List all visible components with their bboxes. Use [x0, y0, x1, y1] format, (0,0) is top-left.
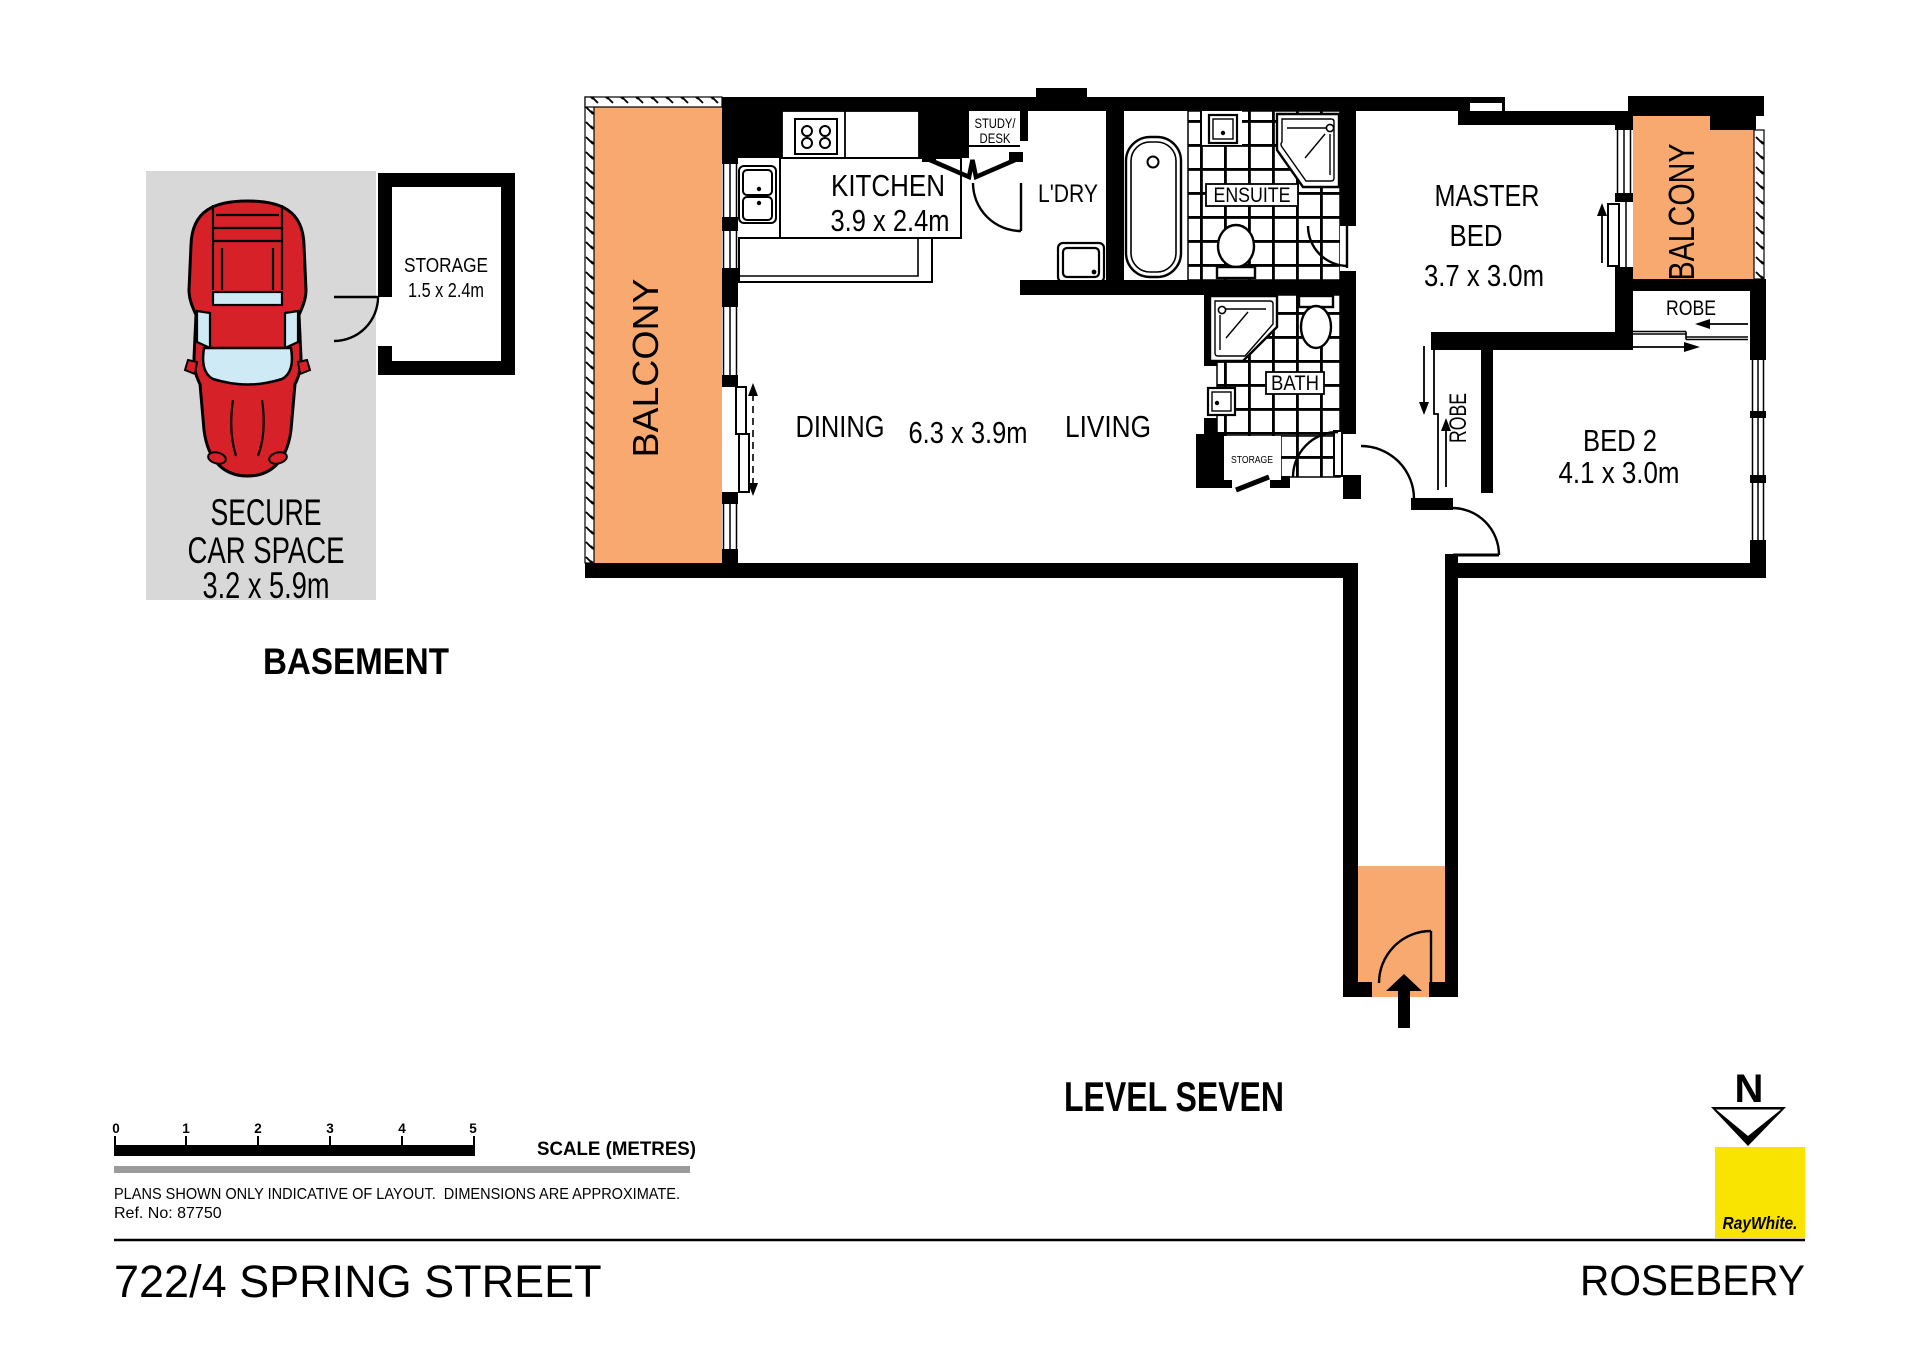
- svg-text:STORAGE: STORAGE: [404, 255, 488, 277]
- svg-text:BASEMENT: BASEMENT: [263, 641, 449, 682]
- svg-text:BED 2: BED 2: [1583, 423, 1657, 458]
- svg-text:0: 0: [112, 1121, 120, 1136]
- svg-text:ENSUITE: ENSUITE: [1214, 184, 1291, 207]
- svg-text:MASTER: MASTER: [1435, 178, 1540, 213]
- svg-text:ROBE: ROBE: [1445, 393, 1472, 443]
- svg-text:4: 4: [398, 1121, 406, 1136]
- svg-text:BATH: BATH: [1271, 372, 1319, 395]
- svg-text:722/4 SPRING STREET: 722/4 SPRING STREET: [114, 1256, 602, 1307]
- svg-text:BED: BED: [1450, 218, 1503, 253]
- svg-text:4.1 x 3.0m: 4.1 x 3.0m: [1559, 455, 1680, 490]
- svg-text:STORAGE: STORAGE: [1231, 454, 1273, 466]
- svg-text:1: 1: [182, 1121, 190, 1136]
- svg-text:1.5 x 2.4m: 1.5 x 2.4m: [408, 280, 484, 302]
- svg-text:5: 5: [469, 1121, 477, 1136]
- svg-text:ROSEBERY: ROSEBERY: [1580, 1257, 1805, 1305]
- svg-text:ROBE: ROBE: [1666, 297, 1716, 320]
- svg-text:Ref. No: 87750: Ref. No: 87750: [114, 1205, 222, 1222]
- svg-text:DESK: DESK: [980, 131, 1011, 146]
- svg-text:N: N: [1735, 1067, 1764, 1111]
- svg-text:RayWhite.: RayWhite.: [1723, 1213, 1798, 1233]
- svg-text:STUDY/: STUDY/: [975, 116, 1016, 131]
- svg-text:SECURE: SECURE: [211, 492, 322, 533]
- svg-text:3.2 x 5.9m: 3.2 x 5.9m: [203, 565, 330, 606]
- svg-text:3: 3: [326, 1121, 334, 1136]
- svg-text:3.7 x 3.0m: 3.7 x 3.0m: [1424, 258, 1544, 293]
- svg-text:BALCONY: BALCONY: [1661, 144, 1702, 281]
- svg-text:DINING: DINING: [796, 409, 885, 444]
- svg-text:2: 2: [254, 1121, 262, 1136]
- svg-text:LEVEL SEVEN: LEVEL SEVEN: [1064, 1073, 1284, 1120]
- svg-text:PLANS SHOWN ONLY INDICATIVE OF: PLANS SHOWN ONLY INDICATIVE OF LAYOUT. D…: [114, 1186, 680, 1203]
- svg-text:SCALE (METRES): SCALE (METRES): [537, 1139, 696, 1160]
- svg-text:LIVING: LIVING: [1065, 409, 1151, 444]
- svg-text:L'DRY: L'DRY: [1038, 180, 1098, 208]
- svg-text:BALCONY: BALCONY: [625, 279, 666, 458]
- svg-text:3.9 x 2.4m: 3.9 x 2.4m: [831, 203, 950, 238]
- svg-text:KITCHEN: KITCHEN: [831, 168, 945, 203]
- svg-text:6.3 x 3.9m: 6.3 x 3.9m: [909, 415, 1028, 450]
